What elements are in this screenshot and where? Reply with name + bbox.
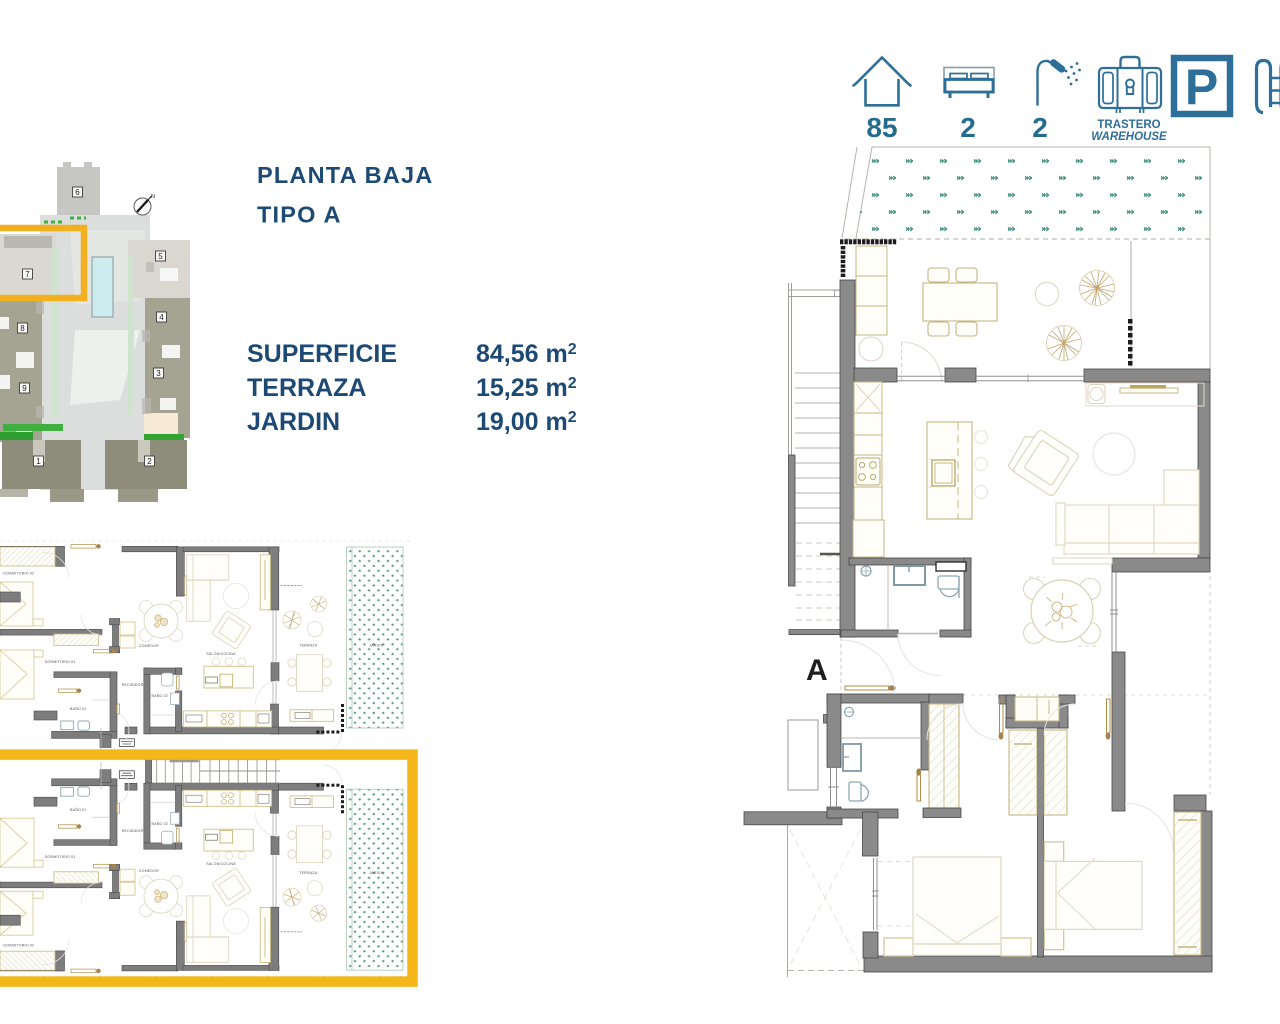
svg-text:COMEDOR: COMEDOR [139, 644, 159, 648]
svg-text:4: 4 [159, 313, 164, 322]
svg-text:2: 2 [1032, 112, 1048, 143]
svg-text:19,00 m2: 19,00 m2 [476, 408, 577, 436]
svg-text:WAREHOUSE: WAREHOUSE [1091, 131, 1167, 143]
svg-text:DORMITORIO 01: DORMITORIO 01 [45, 855, 76, 859]
svg-text:BAÑO 02: BAÑO 02 [152, 821, 169, 826]
svg-text:7: 7 [25, 270, 30, 279]
svg-text:JARDIN: JARDIN [247, 408, 340, 436]
svg-text:6: 6 [75, 188, 80, 197]
svg-text:84,56 m2: 84,56 m2 [476, 340, 577, 368]
svg-text:SALÓN/COCINA: SALÓN/COCINA [206, 651, 236, 656]
svg-text:8: 8 [20, 324, 25, 333]
svg-text:SUPERFICIE: SUPERFICIE [247, 340, 397, 368]
svg-text:JARDIN: JARDIN [369, 871, 383, 875]
svg-text:BAÑO 01: BAÑO 01 [70, 807, 87, 812]
svg-text:TERRAZA: TERRAZA [299, 871, 318, 875]
svg-text:TIPO A: TIPO A [257, 202, 342, 228]
svg-text:DORMITORIO 01: DORMITORIO 01 [45, 660, 76, 664]
svg-text:RECIBIDOR: RECIBIDOR [122, 829, 144, 833]
svg-text:A: A [806, 654, 828, 687]
svg-text:BAÑO 02: BAÑO 02 [152, 693, 169, 698]
svg-text:DORMITORIO 02: DORMITORIO 02 [3, 572, 34, 576]
svg-text:SALÓN/COCINA: SALÓN/COCINA [206, 861, 236, 866]
svg-text:RECIBIDOR: RECIBIDOR [122, 683, 144, 687]
svg-text:BAÑO 01: BAÑO 01 [70, 706, 87, 711]
svg-text:PLANTA BAJA: PLANTA BAJA [257, 162, 433, 188]
svg-text:TERRAZA: TERRAZA [247, 374, 366, 402]
svg-text:N: N [151, 194, 155, 200]
svg-text:P: P [1185, 59, 1218, 115]
svg-text:1: 1 [36, 457, 41, 466]
svg-text:TERRAZA: TERRAZA [299, 644, 318, 648]
svg-text:TRASTERO: TRASTERO [1097, 119, 1160, 131]
svg-text:15,25 m2: 15,25 m2 [476, 374, 577, 402]
svg-text:2: 2 [147, 457, 152, 466]
svg-text:5: 5 [158, 252, 163, 261]
svg-text:2: 2 [960, 112, 976, 143]
svg-text:85: 85 [866, 112, 897, 143]
svg-text:DORMITORIO 02: DORMITORIO 02 [3, 944, 34, 948]
svg-text:JARDIN: JARDIN [369, 644, 383, 648]
svg-text:9: 9 [22, 384, 27, 393]
svg-text:COMEDOR: COMEDOR [139, 869, 159, 873]
svg-text:3: 3 [156, 369, 161, 378]
